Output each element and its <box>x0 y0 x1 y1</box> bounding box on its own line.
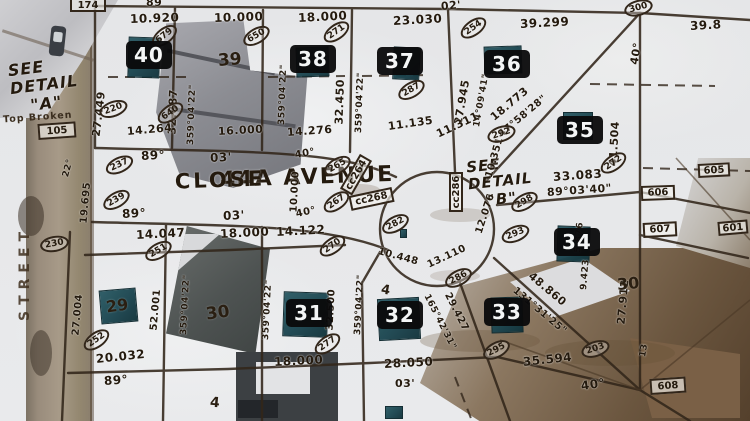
dimension-label: 14.122 <box>276 222 326 239</box>
dimension-label: 89° <box>141 148 166 163</box>
lot-badge: 33 <box>484 298 530 326</box>
lot-badge: 35 <box>557 116 603 144</box>
plat-lot-number: 4 <box>209 395 220 412</box>
dimension-label: 23.030 <box>393 11 443 28</box>
dimension-label: 10.000 <box>214 9 264 25</box>
lot-badge: 36 <box>484 50 530 78</box>
reference-box-tag: cc286 <box>449 172 463 212</box>
dimension-label: 89 <box>146 0 162 9</box>
dimension-label: 359°04'22" <box>277 64 289 125</box>
lot-badge: 31 <box>286 299 332 327</box>
lot-badge: 32 <box>377 301 423 329</box>
dimension-label: 89° <box>104 372 129 388</box>
survey-marker <box>400 229 407 238</box>
reference-box-tag: 174 <box>70 0 106 12</box>
dimension-label: 03' <box>223 208 246 223</box>
reference-box-tag: 606 <box>641 185 676 201</box>
survey-marker <box>385 406 403 419</box>
dimension-label: 10.000 <box>289 171 302 213</box>
dimension-label: 89° <box>122 206 147 221</box>
aerial-plat-map: 44A AVENUE CLOSE SEE DETAIL "A" SEE DETA… <box>0 0 750 421</box>
dimension-label: 359°04'22" <box>186 84 198 145</box>
dimension-label: 39.299 <box>520 14 570 31</box>
plat-lot-number: 39 <box>217 49 242 71</box>
plat-lot-number: 30 <box>205 301 231 324</box>
dimension-label: 28.050 <box>384 354 434 371</box>
dimension-label: 14.047 <box>136 225 186 242</box>
plat-lot-number: 30 <box>616 273 640 294</box>
dimension-label: 39.8 <box>690 17 722 33</box>
lot-badge: 38 <box>290 45 336 73</box>
reference-box-tag: 608 <box>649 377 686 395</box>
see-detail-a-callout: SEE DETAIL "A" <box>7 54 82 117</box>
lot-badge: 37 <box>377 47 423 75</box>
side-street-label: STREET <box>17 211 33 321</box>
dimension-label: 32.450 <box>333 79 348 125</box>
reference-box-tag: 601 <box>717 219 748 236</box>
reference-box-tag: 607 <box>643 221 678 238</box>
dimension-label: 18.000 <box>220 224 270 241</box>
dimension-label: 18.000 <box>274 352 324 369</box>
dimension-label: 359°04'22" <box>354 72 366 133</box>
lot-badge: 40 <box>126 41 172 69</box>
dimension-label: 16.000 <box>218 123 264 138</box>
lot-badge: 34 <box>554 228 600 256</box>
dimension-label: 03' <box>395 377 415 390</box>
dimension-label: 03' <box>210 150 233 165</box>
reference-box-tag: 605 <box>698 162 731 178</box>
plat-lot-number: 29 <box>105 295 130 317</box>
reference-box-tag: 105 <box>37 121 76 140</box>
dimension-label: 02' <box>440 0 461 13</box>
